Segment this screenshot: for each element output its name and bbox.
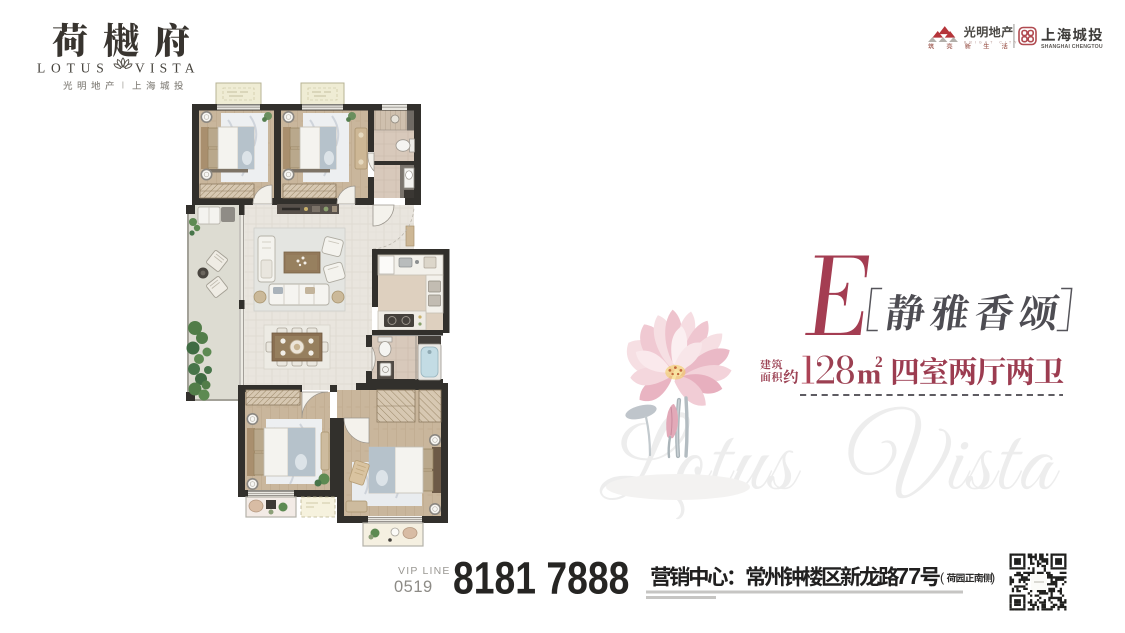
svg-text:0519: 0519 [394, 578, 433, 596]
svg-text:8181 7888: 8181 7888 [453, 552, 629, 603]
svg-text:SHANGHAI CHENGTOU: SHANGHAI CHENGTOU [1041, 44, 1103, 50]
svg-text:): ) [991, 571, 995, 585]
svg-text:LOTUS: LOTUS [37, 61, 110, 76]
svg-text:BRIGHT CITY: BRIGHT CITY [964, 41, 1020, 45]
svg-text:2: 2 [875, 354, 883, 371]
svg-text:77: 77 [896, 563, 921, 589]
svg-text:VISTA: VISTA [135, 61, 200, 76]
svg-text:VIP LINE: VIP LINE [398, 565, 451, 577]
svg-text:(: ( [940, 571, 945, 585]
